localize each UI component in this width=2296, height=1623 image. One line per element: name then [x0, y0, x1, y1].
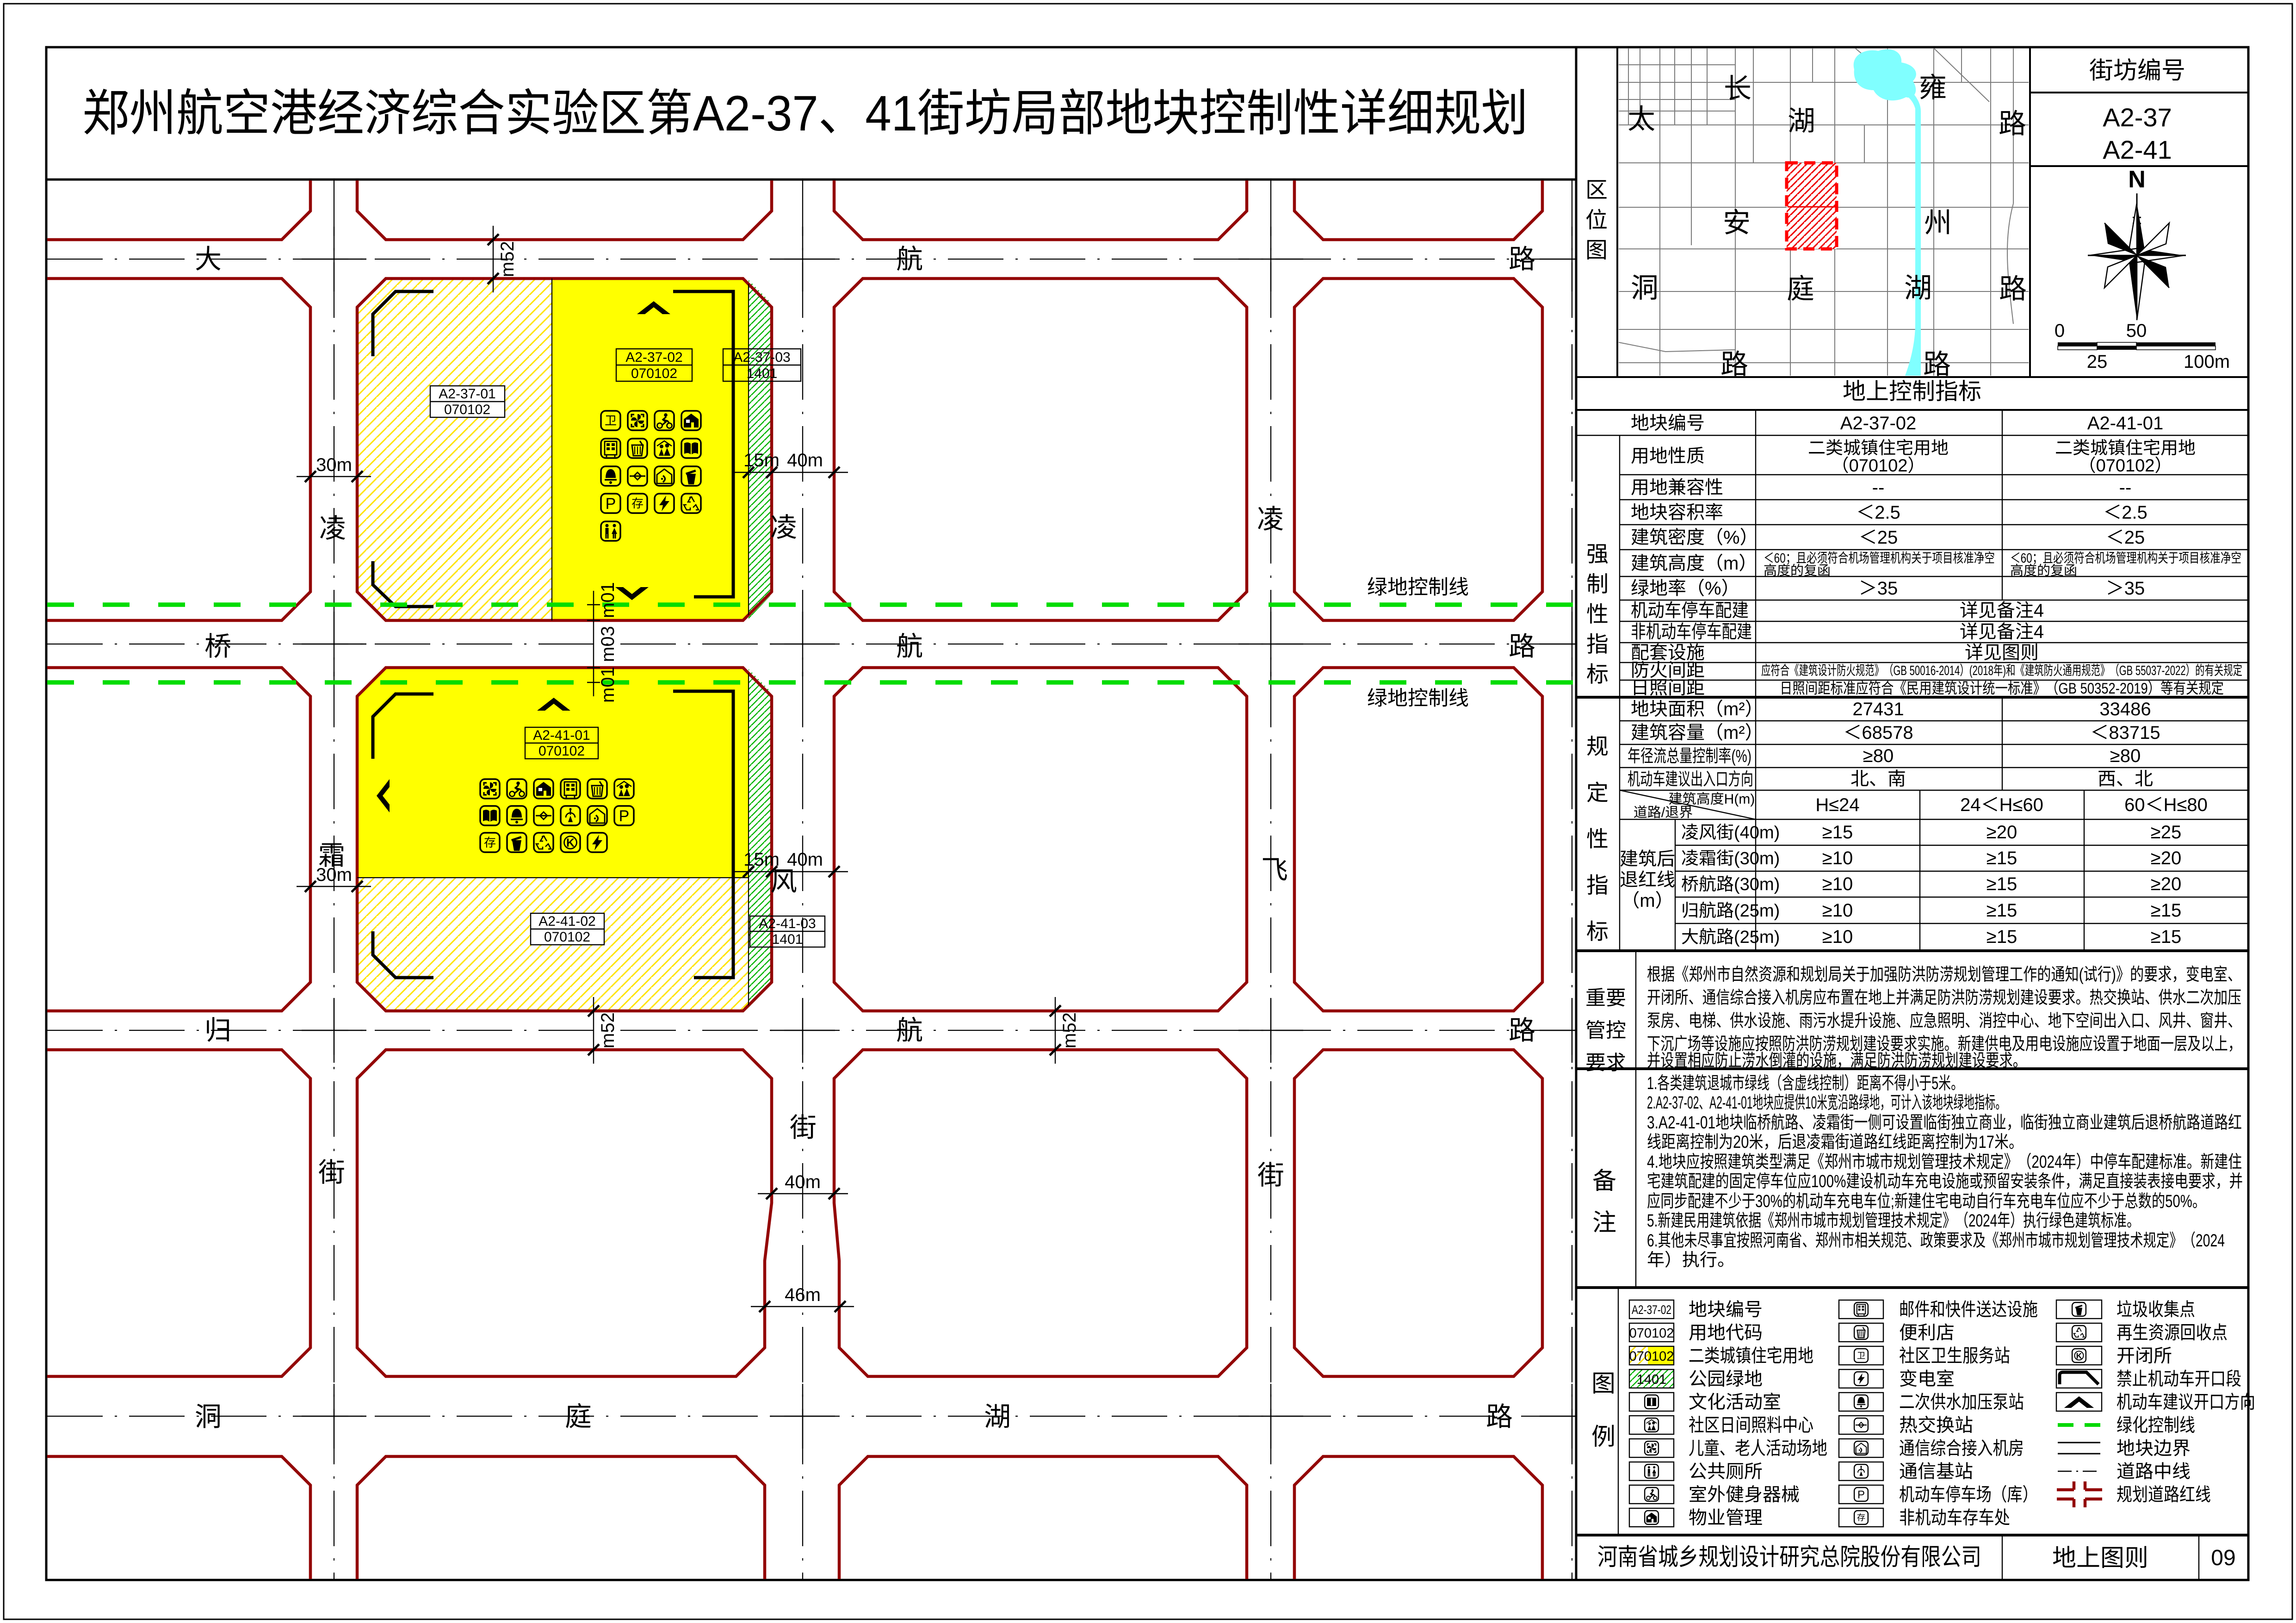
svg-text:N: N — [2128, 166, 2146, 193]
svg-text:15m: 15m — [743, 849, 780, 870]
svg-text:070102: 070102 — [1629, 1349, 1674, 1364]
svg-text:≥15: ≥15 — [1987, 848, 2017, 868]
svg-text:1401: 1401 — [772, 932, 803, 947]
svg-text:m52: m52 — [598, 1012, 618, 1048]
svg-text:H≤24: H≤24 — [1815, 795, 1859, 815]
svg-text:--: -- — [1872, 477, 1885, 498]
svg-text:≥15: ≥15 — [1987, 927, 2017, 947]
svg-text:≥80: ≥80 — [2110, 746, 2141, 766]
svg-text:≥20: ≥20 — [2151, 848, 2181, 868]
svg-text:m03: m03 — [598, 626, 618, 662]
svg-text:070102: 070102 — [631, 366, 677, 381]
svg-text:≥10: ≥10 — [1822, 874, 1853, 894]
svg-text:070102: 070102 — [544, 929, 590, 945]
svg-text:m01: m01 — [598, 667, 618, 703]
svg-text:A2-41: A2-41 — [2103, 135, 2172, 164]
svg-text:A2-41-01: A2-41-01 — [533, 728, 590, 743]
svg-text:40m: 40m — [785, 1172, 821, 1192]
svg-text:≥15: ≥15 — [1987, 900, 2017, 921]
svg-text:A2-37-02: A2-37-02 — [1632, 1303, 1671, 1317]
svg-text:1401: 1401 — [747, 366, 778, 381]
svg-text:40m: 40m — [787, 450, 823, 471]
svg-text:46m: 46m — [785, 1285, 821, 1305]
svg-text:A2-37: A2-37 — [2103, 103, 2172, 132]
svg-text:30m: 30m — [316, 455, 352, 475]
svg-text:A2-37-02: A2-37-02 — [625, 350, 682, 365]
svg-text:27431: 27431 — [1852, 699, 1904, 719]
svg-text:≥20: ≥20 — [2151, 874, 2181, 894]
svg-text:--: -- — [2119, 477, 2132, 498]
svg-text:40m: 40m — [787, 849, 823, 870]
svg-text:070102: 070102 — [1629, 1326, 1674, 1341]
svg-text:m01: m01 — [598, 582, 618, 618]
svg-text:30m: 30m — [316, 865, 352, 885]
svg-text:A2-37-03: A2-37-03 — [733, 350, 790, 365]
svg-text:≥25: ≥25 — [2151, 822, 2181, 842]
svg-text:≥10: ≥10 — [1822, 848, 1853, 868]
svg-text:≥10: ≥10 — [1822, 927, 1853, 947]
svg-text:1401: 1401 — [1637, 1372, 1667, 1387]
svg-text:A2-37-02: A2-37-02 — [1840, 413, 1917, 434]
svg-text:A2-41-03: A2-41-03 — [759, 916, 816, 931]
svg-text:A2-41-01: A2-41-01 — [2087, 413, 2164, 434]
svg-text:A2-37-01: A2-37-01 — [439, 386, 495, 402]
svg-text:≥80: ≥80 — [1863, 746, 1894, 766]
svg-text:m52: m52 — [1059, 1012, 1080, 1048]
svg-text:m52: m52 — [497, 241, 518, 277]
svg-text:100m: 100m — [2184, 352, 2230, 372]
svg-text:≥10: ≥10 — [1822, 900, 1853, 921]
svg-text:A2-41-02: A2-41-02 — [538, 914, 595, 929]
svg-text:33486: 33486 — [2099, 699, 2151, 719]
svg-text:≥15: ≥15 — [1987, 874, 2017, 894]
svg-text:070102: 070102 — [444, 402, 490, 417]
svg-text:≥15: ≥15 — [1822, 822, 1853, 842]
svg-text:25: 25 — [2087, 352, 2108, 372]
svg-text:≥15: ≥15 — [2151, 927, 2181, 947]
svg-text:15m: 15m — [743, 450, 780, 471]
svg-text:070102: 070102 — [538, 743, 585, 759]
svg-text:0: 0 — [2055, 321, 2065, 341]
svg-text:≥20: ≥20 — [1987, 822, 2017, 842]
svg-text:09: 09 — [2211, 1546, 2235, 1570]
svg-text:≥15: ≥15 — [2151, 900, 2181, 921]
svg-text:50: 50 — [2126, 321, 2147, 341]
